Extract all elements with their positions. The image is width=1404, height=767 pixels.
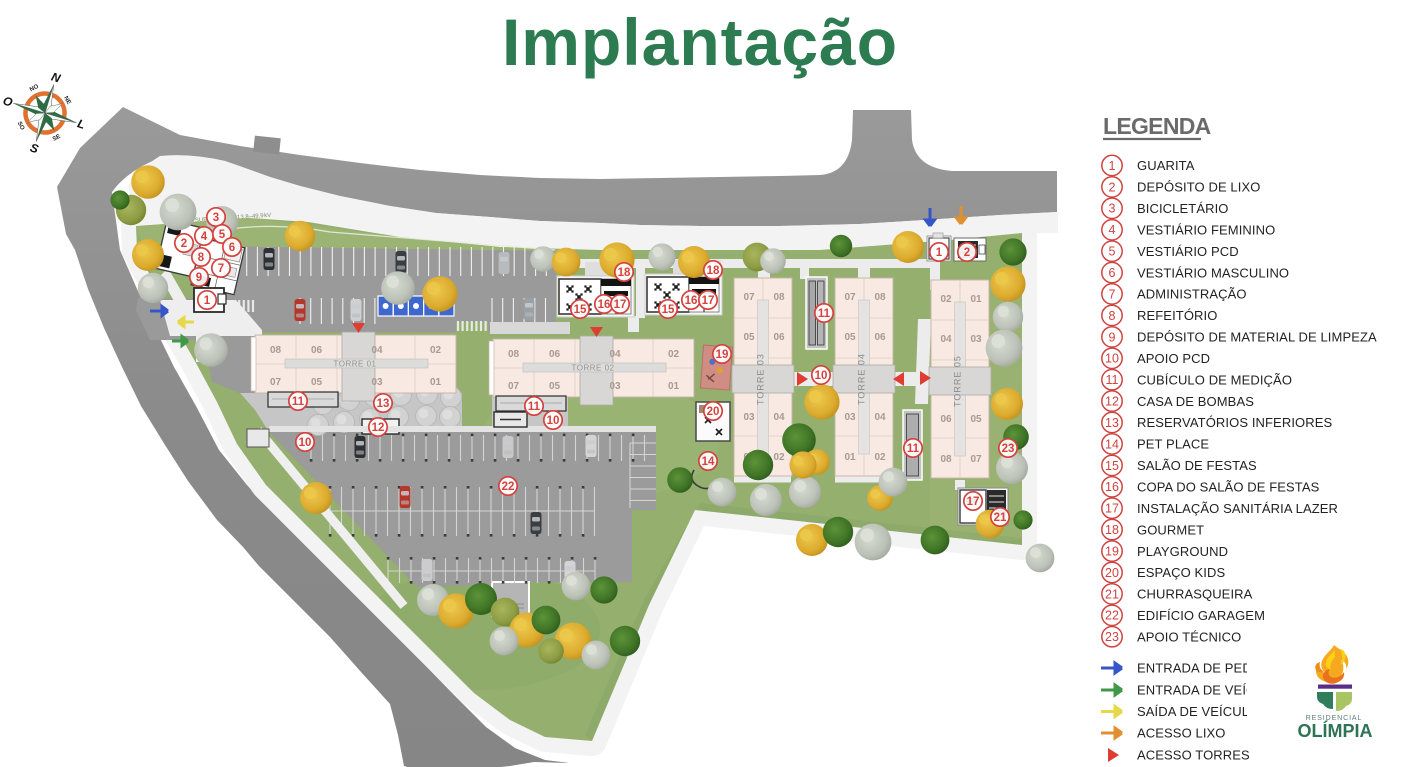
svg-text:06: 06: [311, 345, 323, 356]
svg-text:10: 10: [299, 437, 312, 449]
svg-text:18: 18: [707, 265, 720, 277]
svg-text:11: 11: [292, 396, 305, 408]
svg-text:11: 11: [528, 401, 541, 413]
svg-text:10: 10: [1105, 352, 1119, 366]
svg-text:CASA DE BOMBAS: CASA DE BOMBAS: [1137, 394, 1254, 409]
svg-text:7: 7: [218, 263, 224, 275]
svg-text:4: 4: [1109, 223, 1116, 237]
svg-text:EDIFÍCIO GARAGEM: EDIFÍCIO GARAGEM: [1137, 608, 1265, 623]
svg-text:06: 06: [874, 332, 886, 343]
svg-text:15: 15: [662, 304, 675, 316]
svg-text:23: 23: [1002, 443, 1015, 455]
svg-text:02: 02: [430, 345, 442, 356]
svg-text:PLAYGROUND: PLAYGROUND: [1137, 544, 1228, 559]
svg-text:1: 1: [936, 247, 943, 259]
svg-text:04: 04: [874, 412, 886, 423]
svg-text:TORRE 02: TORRE 02: [572, 364, 615, 373]
svg-text:2: 2: [964, 247, 970, 259]
svg-text:VESTIÁRIO MASCULINO: VESTIÁRIO MASCULINO: [1137, 265, 1289, 280]
svg-text:CHURRASQUEIRA: CHURRASQUEIRA: [1137, 587, 1253, 602]
svg-text:19: 19: [716, 349, 729, 361]
svg-text:02: 02: [773, 452, 785, 463]
svg-text:04: 04: [371, 345, 383, 356]
svg-text:07: 07: [508, 381, 520, 392]
svg-text:9: 9: [196, 272, 202, 284]
svg-text:OLÍMPIA: OLÍMPIA: [1298, 720, 1373, 741]
svg-text:4: 4: [201, 231, 208, 243]
svg-text:06: 06: [549, 349, 561, 360]
svg-text:15: 15: [1105, 459, 1119, 473]
svg-text:Implantação: Implantação: [502, 5, 898, 79]
svg-text:04: 04: [609, 349, 621, 360]
svg-text:11: 11: [818, 308, 831, 320]
svg-text:RESERVATÓRIOS INFERIORES: RESERVATÓRIOS INFERIORES: [1137, 415, 1332, 430]
svg-text:06: 06: [940, 414, 952, 425]
svg-text:17: 17: [1105, 502, 1119, 516]
svg-text:COPA DO SALÃO DE FESTAS: COPA DO SALÃO DE FESTAS: [1137, 480, 1320, 495]
svg-text:20: 20: [707, 406, 720, 418]
svg-text:CUBÍCULO DE MEDIÇÃO: CUBÍCULO DE MEDIÇÃO: [1137, 372, 1292, 387]
svg-text:1: 1: [204, 295, 211, 307]
svg-text:BICICLETÁRIO: BICICLETÁRIO: [1137, 201, 1229, 216]
svg-text:08: 08: [270, 345, 282, 356]
svg-text:INSTALAÇÃO SANITÁRIA LAZER: INSTALAÇÃO SANITÁRIA LAZER: [1137, 501, 1338, 516]
svg-text:14: 14: [1105, 437, 1119, 451]
svg-text:13: 13: [377, 398, 390, 410]
svg-text:SALÃO DE FESTAS: SALÃO DE FESTAS: [1137, 458, 1257, 473]
svg-text:ACESSO TORRES: ACESSO TORRES: [1137, 748, 1250, 763]
svg-text:05: 05: [743, 332, 755, 343]
svg-text:07: 07: [970, 454, 982, 465]
svg-text:23: 23: [1105, 630, 1119, 644]
svg-text:REFEITÓRIO: REFEITÓRIO: [1137, 308, 1217, 323]
svg-text:8: 8: [1109, 309, 1116, 323]
svg-text:14: 14: [702, 456, 715, 468]
svg-text:04: 04: [773, 412, 785, 423]
svg-text:07: 07: [270, 377, 282, 388]
svg-text:01: 01: [844, 452, 856, 463]
svg-text:11: 11: [907, 443, 920, 455]
svg-text:06: 06: [773, 332, 785, 343]
svg-text:TORRE 03: TORRE 03: [756, 353, 766, 405]
svg-text:21: 21: [994, 512, 1007, 524]
svg-text:17: 17: [702, 295, 715, 307]
svg-text:GOURMET: GOURMET: [1137, 522, 1204, 537]
svg-text:13: 13: [1105, 416, 1119, 430]
svg-text:05: 05: [844, 332, 856, 343]
svg-text:TORRE 04: TORRE 04: [857, 353, 867, 405]
svg-text:3: 3: [1109, 202, 1116, 216]
svg-text:DEPÓSITO DE MATERIAL DE LIMPEZ: DEPÓSITO DE MATERIAL DE LIMPEZA: [1137, 330, 1377, 345]
svg-text:20: 20: [1105, 566, 1119, 580]
svg-text:08: 08: [773, 292, 785, 303]
svg-text:12: 12: [1105, 395, 1119, 409]
svg-text:17: 17: [614, 299, 627, 311]
svg-text:6: 6: [1109, 266, 1116, 280]
svg-text:6: 6: [229, 242, 235, 254]
svg-text:GUARITA: GUARITA: [1137, 158, 1195, 173]
svg-text:01: 01: [430, 377, 442, 388]
svg-text:15: 15: [574, 304, 587, 316]
svg-text:22: 22: [502, 481, 515, 493]
svg-text:02: 02: [874, 452, 886, 463]
svg-text:PET PLACE: PET PLACE: [1137, 437, 1209, 452]
svg-text:03: 03: [609, 381, 621, 392]
svg-text:TORRE 01: TORRE 01: [334, 360, 377, 369]
svg-text:03: 03: [371, 377, 383, 388]
svg-text:VESTIÁRIO FEMININO: VESTIÁRIO FEMININO: [1137, 223, 1275, 238]
svg-text:ACESSO LIXO: ACESSO LIXO: [1137, 726, 1226, 741]
svg-text:18: 18: [1105, 523, 1119, 537]
svg-text:17: 17: [967, 496, 980, 508]
svg-text:05: 05: [311, 377, 323, 388]
svg-text:08: 08: [508, 349, 520, 360]
svg-text:02: 02: [668, 349, 680, 360]
svg-text:01: 01: [668, 381, 680, 392]
svg-text:19: 19: [1105, 545, 1119, 559]
svg-text:07: 07: [743, 292, 755, 303]
svg-text:VESTIÁRIO PCD: VESTIÁRIO PCD: [1137, 244, 1239, 259]
svg-text:18: 18: [618, 267, 631, 279]
svg-text:11: 11: [1106, 373, 1119, 387]
svg-text:10: 10: [815, 370, 828, 382]
svg-text:2: 2: [181, 238, 187, 250]
svg-text:05: 05: [549, 381, 561, 392]
svg-text:07: 07: [844, 292, 856, 303]
svg-text:ESPAÇO KIDS: ESPAÇO KIDS: [1137, 565, 1226, 580]
svg-text:12: 12: [372, 422, 385, 434]
svg-text:02: 02: [940, 294, 952, 305]
svg-text:DEPÓSITO DE LIXO: DEPÓSITO DE LIXO: [1137, 180, 1260, 195]
svg-text:LEGENDA: LEGENDA: [1103, 113, 1211, 139]
svg-text:05: 05: [970, 414, 982, 425]
svg-text:03: 03: [844, 412, 856, 423]
svg-text:TORRE 05: TORRE 05: [953, 355, 963, 407]
svg-text:ADMINISTRAÇÃO: ADMINISTRAÇÃO: [1137, 287, 1247, 302]
svg-text:22: 22: [1105, 609, 1119, 623]
svg-text:16: 16: [598, 299, 611, 311]
svg-text:01: 01: [970, 294, 982, 305]
svg-text:1: 1: [1109, 159, 1116, 173]
svg-text:8: 8: [198, 252, 205, 264]
svg-text:9: 9: [1109, 330, 1116, 344]
svg-text:21: 21: [1105, 587, 1119, 601]
svg-text:3: 3: [213, 212, 219, 224]
svg-text:2: 2: [1109, 180, 1116, 194]
svg-text:APOIO PCD: APOIO PCD: [1137, 351, 1210, 366]
svg-text:5: 5: [1109, 245, 1116, 259]
svg-text:03: 03: [743, 412, 755, 423]
svg-text:10: 10: [547, 415, 560, 427]
svg-text:08: 08: [874, 292, 886, 303]
svg-text:08: 08: [940, 454, 952, 465]
svg-text:03: 03: [970, 334, 982, 345]
svg-text:7: 7: [1109, 287, 1116, 301]
svg-text:04: 04: [940, 334, 952, 345]
svg-text:5: 5: [219, 229, 226, 241]
svg-text:16: 16: [1105, 480, 1119, 494]
svg-text:APOIO TÉCNICO: APOIO TÉCNICO: [1137, 629, 1241, 644]
svg-text:16: 16: [685, 295, 698, 307]
